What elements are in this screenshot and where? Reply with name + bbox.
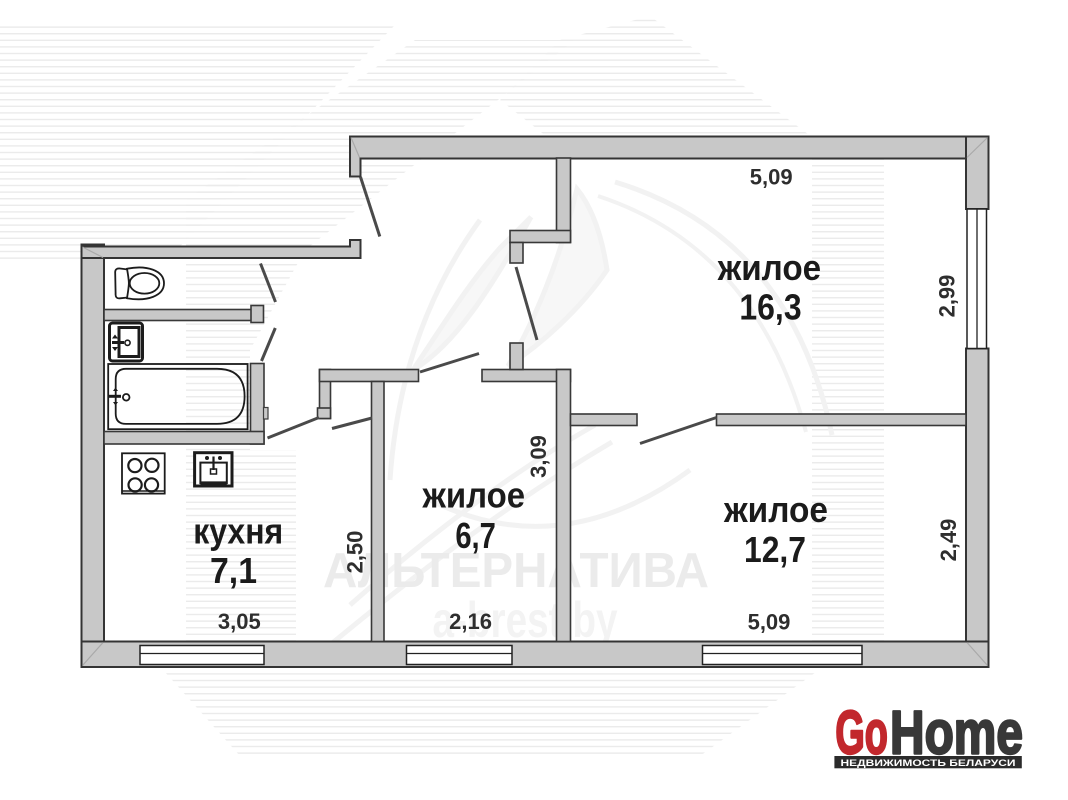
svg-text:жилое: жилое — [717, 247, 821, 288]
svg-text:5,09: 5,09 — [750, 165, 793, 190]
svg-text:3,09: 3,09 — [526, 435, 551, 478]
svg-text:НЕДВИЖИМОСТЬ БЕЛАРУСИ: НЕДВИЖИМОСТЬ БЕЛАРУСИ — [841, 758, 1016, 769]
svg-text:16,3: 16,3 — [739, 287, 801, 328]
svg-text:5,09: 5,09 — [748, 610, 791, 635]
svg-text:3,05: 3,05 — [218, 609, 261, 634]
svg-text:2,16: 2,16 — [449, 609, 492, 634]
svg-text:6,7: 6,7 — [455, 515, 496, 556]
svg-text:жилое: жилое — [422, 475, 526, 516]
svg-text:кухня: кухня — [193, 511, 283, 552]
svg-text:7,1: 7,1 — [210, 550, 257, 591]
svg-text:2,49: 2,49 — [936, 519, 961, 562]
svg-text:жилое: жилое — [723, 489, 828, 530]
svg-text:2,50: 2,50 — [343, 531, 368, 574]
svg-text:2,99: 2,99 — [935, 275, 960, 318]
svg-text:12,7: 12,7 — [744, 529, 806, 570]
